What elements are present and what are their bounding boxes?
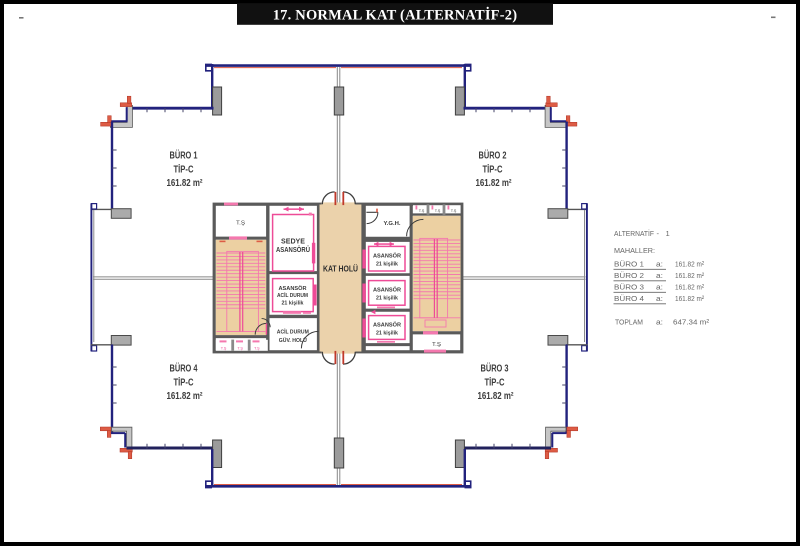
svg-text:T.Ş: T.Ş — [221, 345, 227, 350]
svg-text:161.82 m²: 161.82 m² — [167, 390, 203, 402]
svg-text:161.82 m²: 161.82 m² — [675, 271, 704, 280]
svg-text:BÜRO 4: BÜRO 4 — [170, 362, 198, 375]
svg-text:TİP-C: TİP-C — [174, 163, 194, 176]
svg-text:1: 1 — [666, 229, 670, 238]
svg-text:a:: a: — [656, 283, 663, 292]
svg-text:17. NORMAL KAT (ALTERNATİF-2): 17. NORMAL KAT (ALTERNATİF-2) — [273, 7, 518, 24]
svg-text:TİP-C: TİP-C — [485, 376, 505, 389]
svg-text:T.Ş: T.Ş — [254, 345, 260, 350]
svg-text:161.82 m²: 161.82 m² — [675, 294, 704, 303]
svg-text:ACİL DURUM: ACİL DURUM — [277, 329, 309, 336]
svg-text:a:: a: — [656, 260, 663, 269]
svg-text:a:: a: — [656, 294, 663, 303]
svg-text:161.82 m²: 161.82 m² — [476, 177, 512, 189]
svg-text:BÜRO 3: BÜRO 3 — [481, 362, 509, 375]
svg-text:T.Ş: T.Ş — [435, 208, 441, 213]
svg-text:647.34 m²: 647.34 m² — [673, 318, 709, 327]
svg-text:T.Ş: T.Ş — [432, 342, 442, 348]
svg-text:BÜRO 2: BÜRO 2 — [614, 271, 644, 280]
svg-text:BÜRO 4: BÜRO 4 — [614, 294, 644, 303]
svg-text:BÜRO 2: BÜRO 2 — [479, 149, 507, 162]
svg-text:TİP-C: TİP-C — [174, 376, 194, 389]
svg-text:21 kişilik: 21 kişilik — [376, 296, 398, 302]
svg-text:161.82 m²: 161.82 m² — [675, 260, 704, 269]
svg-text:T.Ş: T.Ş — [236, 221, 246, 227]
svg-text:21 kişilik: 21 kişilik — [376, 331, 398, 337]
svg-text:T.Ş: T.Ş — [451, 208, 457, 213]
svg-text:BÜRO 3: BÜRO 3 — [614, 283, 644, 292]
svg-text:161.82 m²: 161.82 m² — [675, 283, 704, 292]
svg-text:21 kişilik: 21 kişilik — [282, 300, 304, 306]
svg-text:TOPLAM: TOPLAM — [615, 318, 643, 327]
svg-text:ASANSÖR: ASANSÖR — [279, 285, 307, 292]
svg-text:TİP-C: TİP-C — [483, 163, 503, 176]
svg-text:161.82 m²: 161.82 m² — [478, 390, 514, 402]
svg-text:ASANSÖRÜ: ASANSÖRÜ — [276, 245, 310, 254]
svg-text:KAT HOLÜ: KAT HOLÜ — [323, 264, 358, 274]
svg-text:161.82 m²: 161.82 m² — [167, 177, 203, 189]
svg-text:ASANSÖR: ASANSÖR — [373, 287, 401, 294]
svg-text:ASANSÖR: ASANSÖR — [373, 253, 401, 260]
svg-text:T.Ş: T.Ş — [237, 345, 243, 350]
svg-text:MAHALLER:: MAHALLER: — [614, 246, 655, 255]
svg-text:a:: a: — [656, 318, 663, 327]
svg-text:ALTERNATİF: ALTERNATİF — [614, 229, 654, 238]
svg-text:BÜRO 1: BÜRO 1 — [170, 149, 198, 162]
svg-text:T.Ş: T.Ş — [419, 208, 425, 213]
svg-text:21 kişilik: 21 kişilik — [376, 262, 398, 268]
svg-text:BÜRO 1: BÜRO 1 — [614, 260, 644, 269]
svg-text:ASANSÖR: ASANSÖR — [373, 322, 401, 329]
svg-text:a:: a: — [656, 271, 663, 280]
svg-text:Y.G.H.: Y.G.H. — [384, 221, 401, 227]
svg-text:ACİL DURUM: ACİL DURUM — [277, 292, 308, 299]
